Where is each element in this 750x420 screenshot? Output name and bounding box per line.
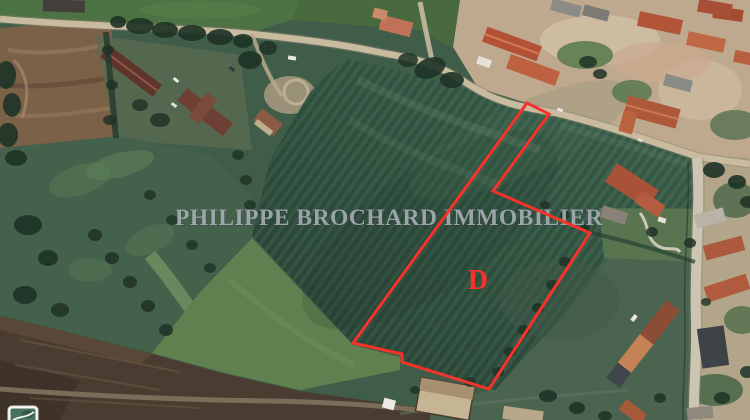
satellite-listing-photo: PHILIPPE BROCHARD IMMOBILIER D	[0, 0, 750, 420]
aerial-map-canvas: PHILIPPE BROCHARD IMMOBILIER D	[0, 0, 750, 420]
watermark-text: PHILIPPE BROCHARD IMMOBILIER	[175, 205, 603, 231]
minimap-thumbnail[interactable]	[8, 406, 38, 420]
parcel-label: D	[468, 265, 488, 296]
